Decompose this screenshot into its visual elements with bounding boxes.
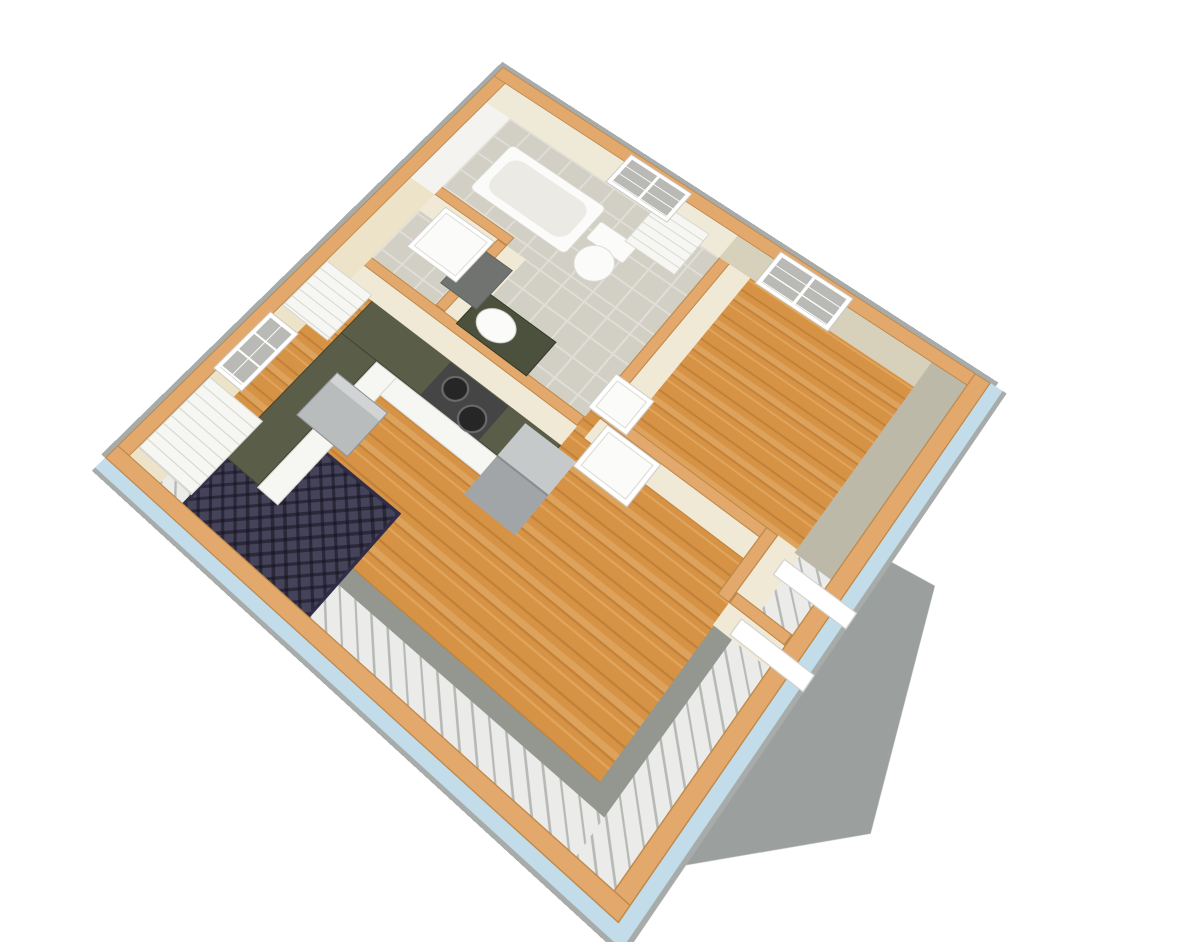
house-plan [118,67,975,890]
stove-burner [436,371,475,407]
floor-plan-render [0,0,1183,942]
